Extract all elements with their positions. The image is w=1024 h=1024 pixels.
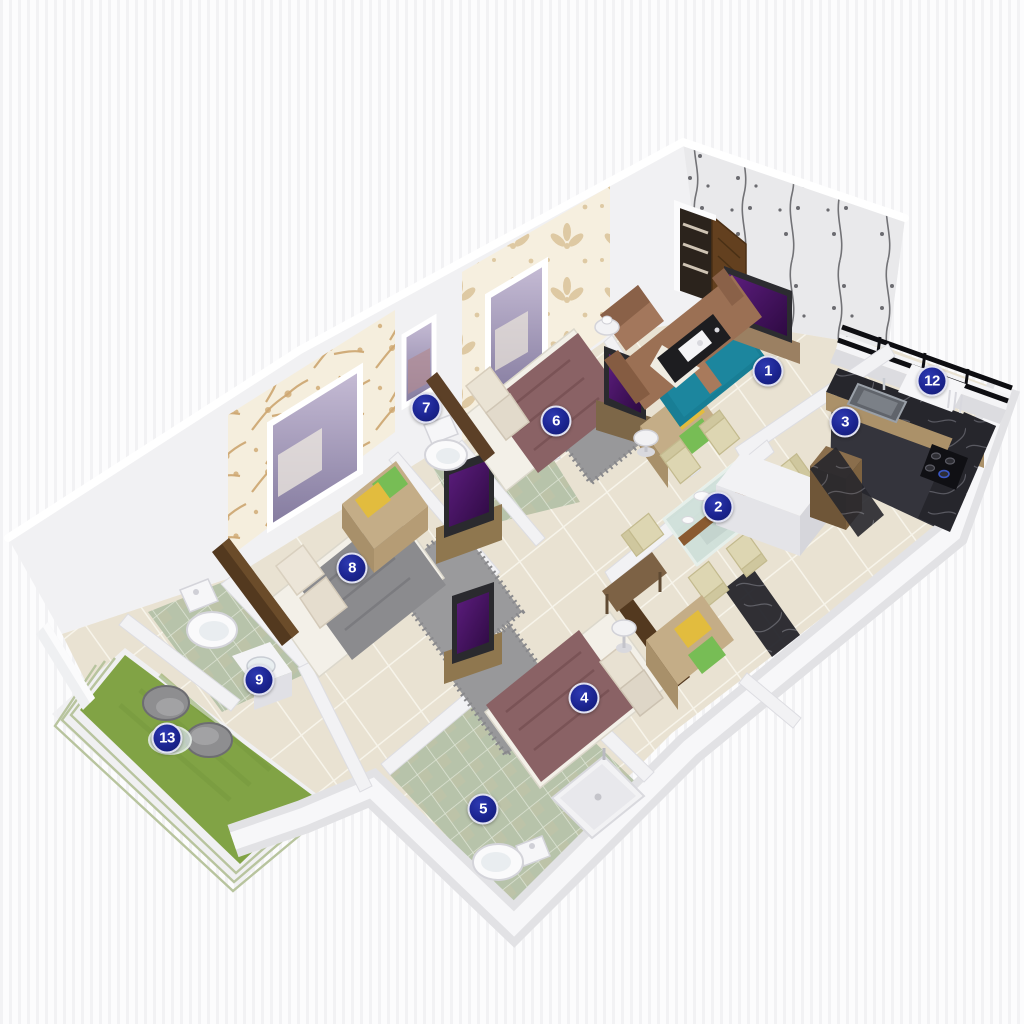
room-marker-9[interactable]: 9 bbox=[244, 665, 275, 696]
room-marker-2[interactable]: 2 bbox=[703, 492, 734, 523]
room-marker-5[interactable]: 5 bbox=[468, 794, 499, 825]
room-marker-6[interactable]: 6 bbox=[541, 406, 572, 437]
room-marker-8[interactable]: 8 bbox=[337, 553, 368, 584]
room-marker-12[interactable]: 12 bbox=[917, 366, 948, 397]
floor-plan-canvas: 1234567891213 bbox=[0, 0, 1024, 1024]
room-marker-4[interactable]: 4 bbox=[569, 683, 600, 714]
room-marker-3[interactable]: 3 bbox=[830, 407, 861, 438]
room-marker-7[interactable]: 7 bbox=[411, 393, 442, 424]
room-marker-13[interactable]: 13 bbox=[152, 723, 183, 754]
room-markers: 1234567891213 bbox=[0, 0, 1024, 1024]
room-marker-1[interactable]: 1 bbox=[753, 356, 784, 387]
